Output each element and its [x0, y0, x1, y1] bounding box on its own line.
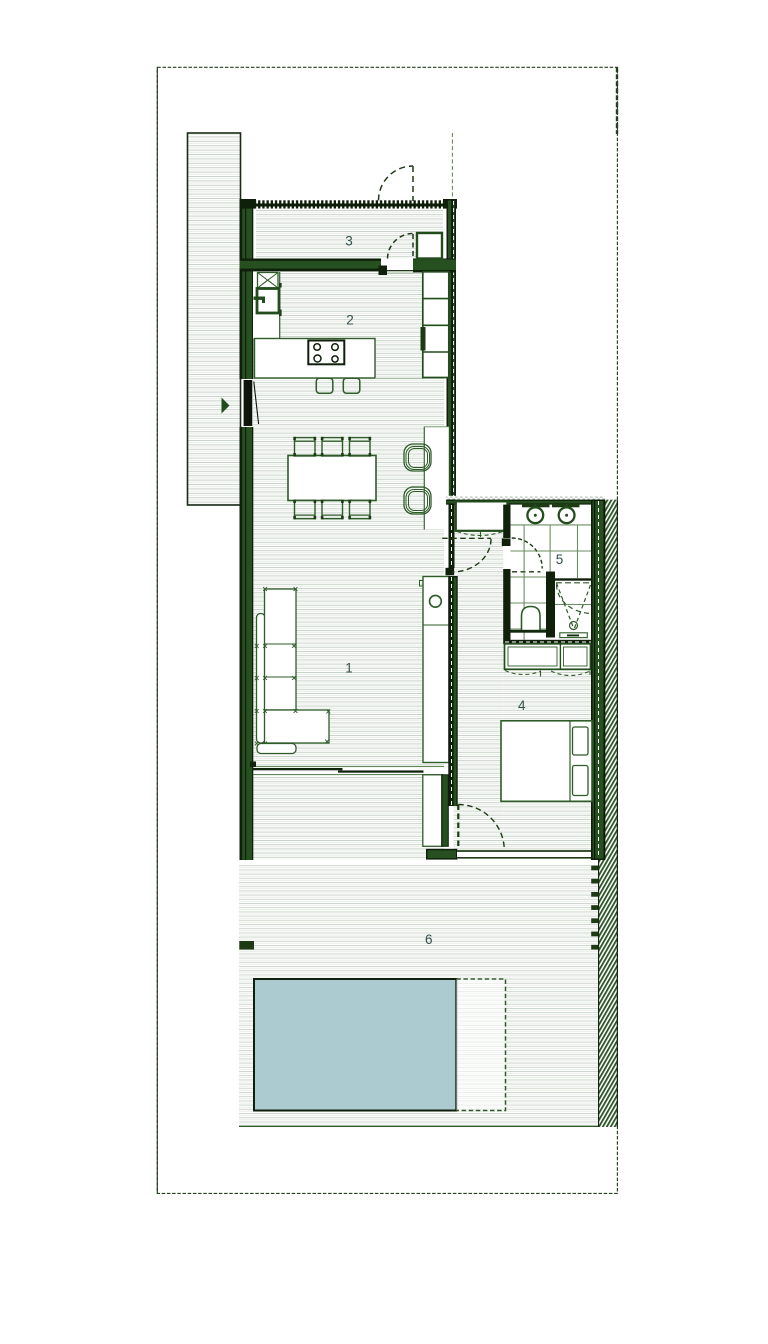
svg-text:6: 6	[425, 932, 433, 947]
svg-text:4: 4	[518, 698, 526, 713]
svg-text:2: 2	[346, 312, 354, 327]
svg-text:5: 5	[556, 552, 564, 567]
svg-text:1: 1	[345, 660, 353, 675]
svg-text:3: 3	[345, 234, 353, 249]
